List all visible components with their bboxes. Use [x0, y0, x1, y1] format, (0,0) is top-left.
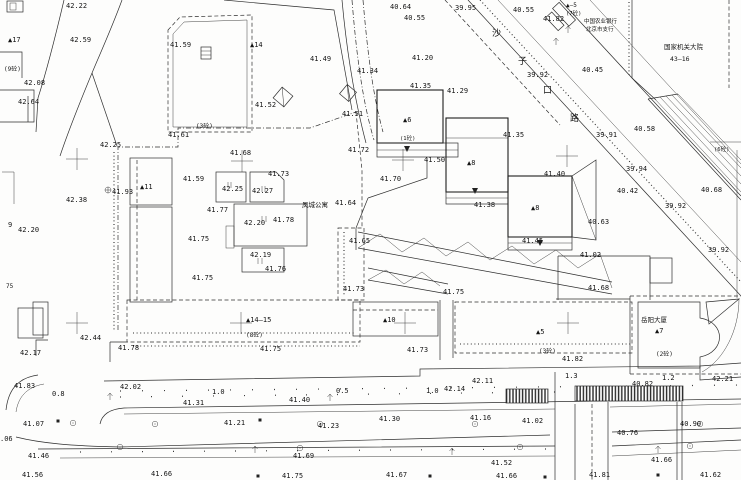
grid-cross-icon [392, 149, 414, 171]
elevation-label: 41.75 [188, 235, 209, 243]
elevation-label: 41.45 [522, 237, 543, 245]
dimension-label: 0.8 [52, 390, 65, 398]
place-name-label: 中国农业银行 [584, 17, 618, 25]
elevation-label: 41.21 [224, 419, 245, 427]
building-number-label: ▲17 [8, 36, 21, 44]
street-name-char: 路 [570, 112, 579, 124]
road-bands-layer [6, 363, 741, 480]
elevation-label: 41.29 [447, 87, 468, 95]
dimension-label: 1.0 [212, 388, 225, 396]
elevation-label: 41.56 [22, 471, 43, 479]
elevation-label: 41.67 [386, 471, 407, 479]
elevation-label: 42.20 [18, 226, 39, 234]
elevation-label: 41.31 [183, 399, 204, 407]
elevation-label: 40.90 [680, 420, 701, 428]
elevation-label: 41.77 [207, 206, 228, 214]
elevation-label: 39.92 [708, 246, 729, 254]
building-number-label: (9砼) [4, 65, 21, 73]
south-buildings-layer [18, 296, 741, 374]
elevation-label: 39.91 [596, 131, 617, 139]
elevation-label: 42.08 [24, 79, 45, 87]
elevation-label: 41.76 [265, 265, 286, 273]
grid-cross-icon [557, 312, 579, 334]
building-number-label: (8砼) [246, 331, 263, 339]
building-number-label: ▲6 [403, 116, 411, 124]
lamp-icon [108, 393, 113, 400]
building-number-label: (3砼) [196, 122, 213, 130]
point-marker-icon [657, 474, 660, 477]
crosswalk-hatch [575, 386, 683, 401]
elevation-label: 42.59 [70, 36, 91, 44]
elevation-label: 41.30 [379, 415, 400, 423]
elevation-label: 41.78 [273, 216, 294, 224]
elevation-label: 40.68 [701, 186, 722, 194]
building-number-label: ▲14 [250, 41, 263, 49]
elevation-label: 42.22 [66, 2, 87, 10]
elevation-label: 41.02 [580, 251, 601, 259]
elevation-label: 9 [8, 221, 12, 229]
building-number-label: ▲14—15 [246, 316, 271, 324]
elevation-label: 42.21 [712, 375, 733, 383]
building-number-label: (6砼) [714, 145, 729, 153]
elevation-label: 41.40 [544, 170, 565, 178]
elevation-label: 42.14 [444, 385, 465, 393]
elevation-label: 42.02 [120, 383, 141, 391]
building-number-label: ▲11 [140, 183, 153, 191]
building-number-label: (1砼) [400, 134, 415, 142]
street-name-char: 口 [543, 86, 552, 96]
elevation-label: 41.73 [268, 170, 289, 178]
dimension-label: 1.3 [565, 372, 578, 380]
grid-cross-icon [66, 148, 88, 170]
grid-cross-icon [66, 312, 88, 334]
elevation-label: 42.38 [66, 196, 87, 204]
elevation-label: 41.82 [562, 355, 583, 363]
street-name-char: 子 [518, 56, 527, 67]
elevation-label: 75 [6, 283, 14, 290]
elevation-label: 42.64 [18, 98, 39, 106]
parcels-top-layer [168, 0, 356, 132]
elevation-label: 41.69 [293, 452, 314, 460]
elevation-label: 41.62 [700, 471, 721, 479]
elevation-label: 41.70 [380, 175, 401, 183]
lamp-icon [328, 394, 333, 401]
elevation-label: 40.55 [404, 14, 425, 22]
elevation-label: 41.49 [310, 55, 331, 63]
elevation-label: 41.35 [503, 131, 524, 139]
elevation-label: 41.72 [348, 146, 369, 154]
grid-cross-icon [556, 145, 578, 167]
elevation-label: 41.34 [357, 67, 378, 75]
elevation-label: 39.94 [626, 165, 647, 173]
point-marker-icon [259, 419, 262, 422]
compound-buildings-layer [130, 158, 364, 302]
elevation-label: 41.66 [651, 456, 672, 464]
lamp-icon [656, 446, 661, 453]
elevation-label: .06 [0, 435, 13, 443]
elevation-label: 41.46 [28, 452, 49, 460]
dimension-label: 1.2 [662, 374, 675, 382]
place-name-label: 国家机关大院 [664, 42, 704, 51]
building-number-label: (2砼) [656, 350, 673, 358]
point-marker-icon [544, 476, 547, 479]
elevation-label: 41.20 [412, 54, 433, 62]
elevation-label: 41.07 [23, 420, 44, 428]
elevation-label: 40.42 [617, 187, 638, 195]
elevation-label: 40.45 [582, 66, 603, 74]
elevation-label: 42.19 [250, 251, 271, 259]
elevation-label: 40.55 [513, 6, 534, 14]
elevation-label: 41.16 [470, 414, 491, 422]
elevation-label: 41.73 [343, 285, 364, 293]
elevation-label: 39.92 [665, 202, 686, 210]
benchmark-icon [105, 187, 111, 193]
building-number-label: ▲7 [655, 327, 663, 335]
dimension-label: 0.5 [336, 387, 349, 395]
elevation-label: 40.76 [617, 429, 638, 437]
elevation-label: 40.64 [390, 3, 411, 11]
building-number-label: ▲8 [531, 204, 539, 212]
elevation-label: 39.95 [455, 4, 476, 12]
elevation-label: 42.44 [80, 334, 101, 342]
elevation-label: 41.93 [112, 188, 133, 196]
site-plan-sheet: 42.2242.5941.5942.0842.6441.5241.4941.34… [0, 0, 741, 480]
elevation-label: 40.82 [632, 380, 653, 388]
building-number-label: (7砼) [566, 9, 581, 17]
elevation-label: 40.58 [634, 125, 655, 133]
place-name-label: 岳阳大厦 [641, 315, 668, 324]
labels-layer: 42.2242.5941.5942.0842.6441.5241.4941.34… [0, 2, 733, 480]
building-number-label: ▲8 [467, 159, 475, 167]
lamp-icon [566, 26, 571, 33]
elevation-label: 42.25 [100, 141, 121, 149]
dimension-label: 1.0 [426, 387, 439, 395]
elevation-label: 41.52 [255, 101, 276, 109]
building-number-label: ▲—5 [566, 2, 577, 9]
compound-boundary-layer [114, 112, 362, 330]
elevation-label: 41.61 [168, 131, 189, 139]
elevation-label: 41.75 [192, 274, 213, 282]
elevation-label: 39.92 [527, 71, 548, 79]
elevation-label: 41.66 [151, 470, 172, 478]
elevation-label: 41.23 [318, 422, 339, 430]
elevation-label: 41.52 [491, 459, 512, 467]
place-name-label: 北京市支行 [586, 25, 614, 33]
building-number-label: ▲5 [536, 328, 544, 336]
elevation-label: 42.27 [252, 187, 273, 195]
elevation-label: 41.02 [522, 417, 543, 425]
elevation-label: 41.66 [496, 472, 517, 480]
grid-cross-icon [394, 312, 416, 334]
place-name-label: 43—16 [670, 55, 690, 63]
elevation-label: 42.11 [472, 377, 493, 385]
elevation-label: 41.35 [410, 82, 431, 90]
slope-terrace-layer [356, 158, 672, 300]
elevation-label: 41.75 [282, 472, 303, 480]
lamp-icon [253, 446, 258, 453]
elevation-label: 41.75 [443, 288, 464, 296]
elevation-label: 41.51 [342, 110, 363, 118]
elevation-label: 41.38 [474, 201, 495, 209]
lamp-icon [450, 448, 455, 455]
elevation-label: 41.59 [170, 41, 191, 49]
building-number-label: ▲10 [383, 316, 396, 324]
elevation-label: 42.20 [244, 219, 265, 227]
elevation-label: 41.73 [407, 346, 428, 354]
elevation-label: 40.63 [588, 218, 609, 226]
point-marker-icon [57, 420, 60, 423]
elevation-label: 41.81 [589, 471, 610, 479]
building-number-label: (3砼) [539, 347, 556, 355]
street-name-char: 沙 [492, 28, 501, 39]
point-marker-icon [257, 475, 260, 478]
site-plan-canvas: 42.2242.5941.5942.0842.6441.5241.4941.34… [0, 0, 741, 480]
elevation-label: 41.40 [289, 396, 310, 404]
elevation-label: 41.65 [349, 237, 370, 245]
elevation-label: 41.75 [260, 345, 281, 353]
elevation-label: 42.25 [222, 185, 243, 193]
crosswalk-hatch [506, 389, 548, 403]
place-name-label: 凤城公寓 [302, 200, 328, 209]
point-marker-icon [429, 475, 432, 478]
elevation-label: 41.68 [230, 149, 251, 157]
lamp-icon [554, 38, 559, 45]
elevation-label: 41.83 [14, 382, 35, 390]
elevation-label: 41.50 [424, 156, 445, 164]
elevation-label: 41.64 [335, 199, 356, 207]
elevation-label: 41.82 [543, 15, 564, 23]
elevation-label: 41.78 [118, 344, 139, 352]
elevation-label: 41.59 [183, 175, 204, 183]
kiosk-icon [273, 87, 293, 107]
elevation-label: 42.17 [20, 349, 41, 357]
elevation-label: 41.68 [588, 284, 609, 292]
